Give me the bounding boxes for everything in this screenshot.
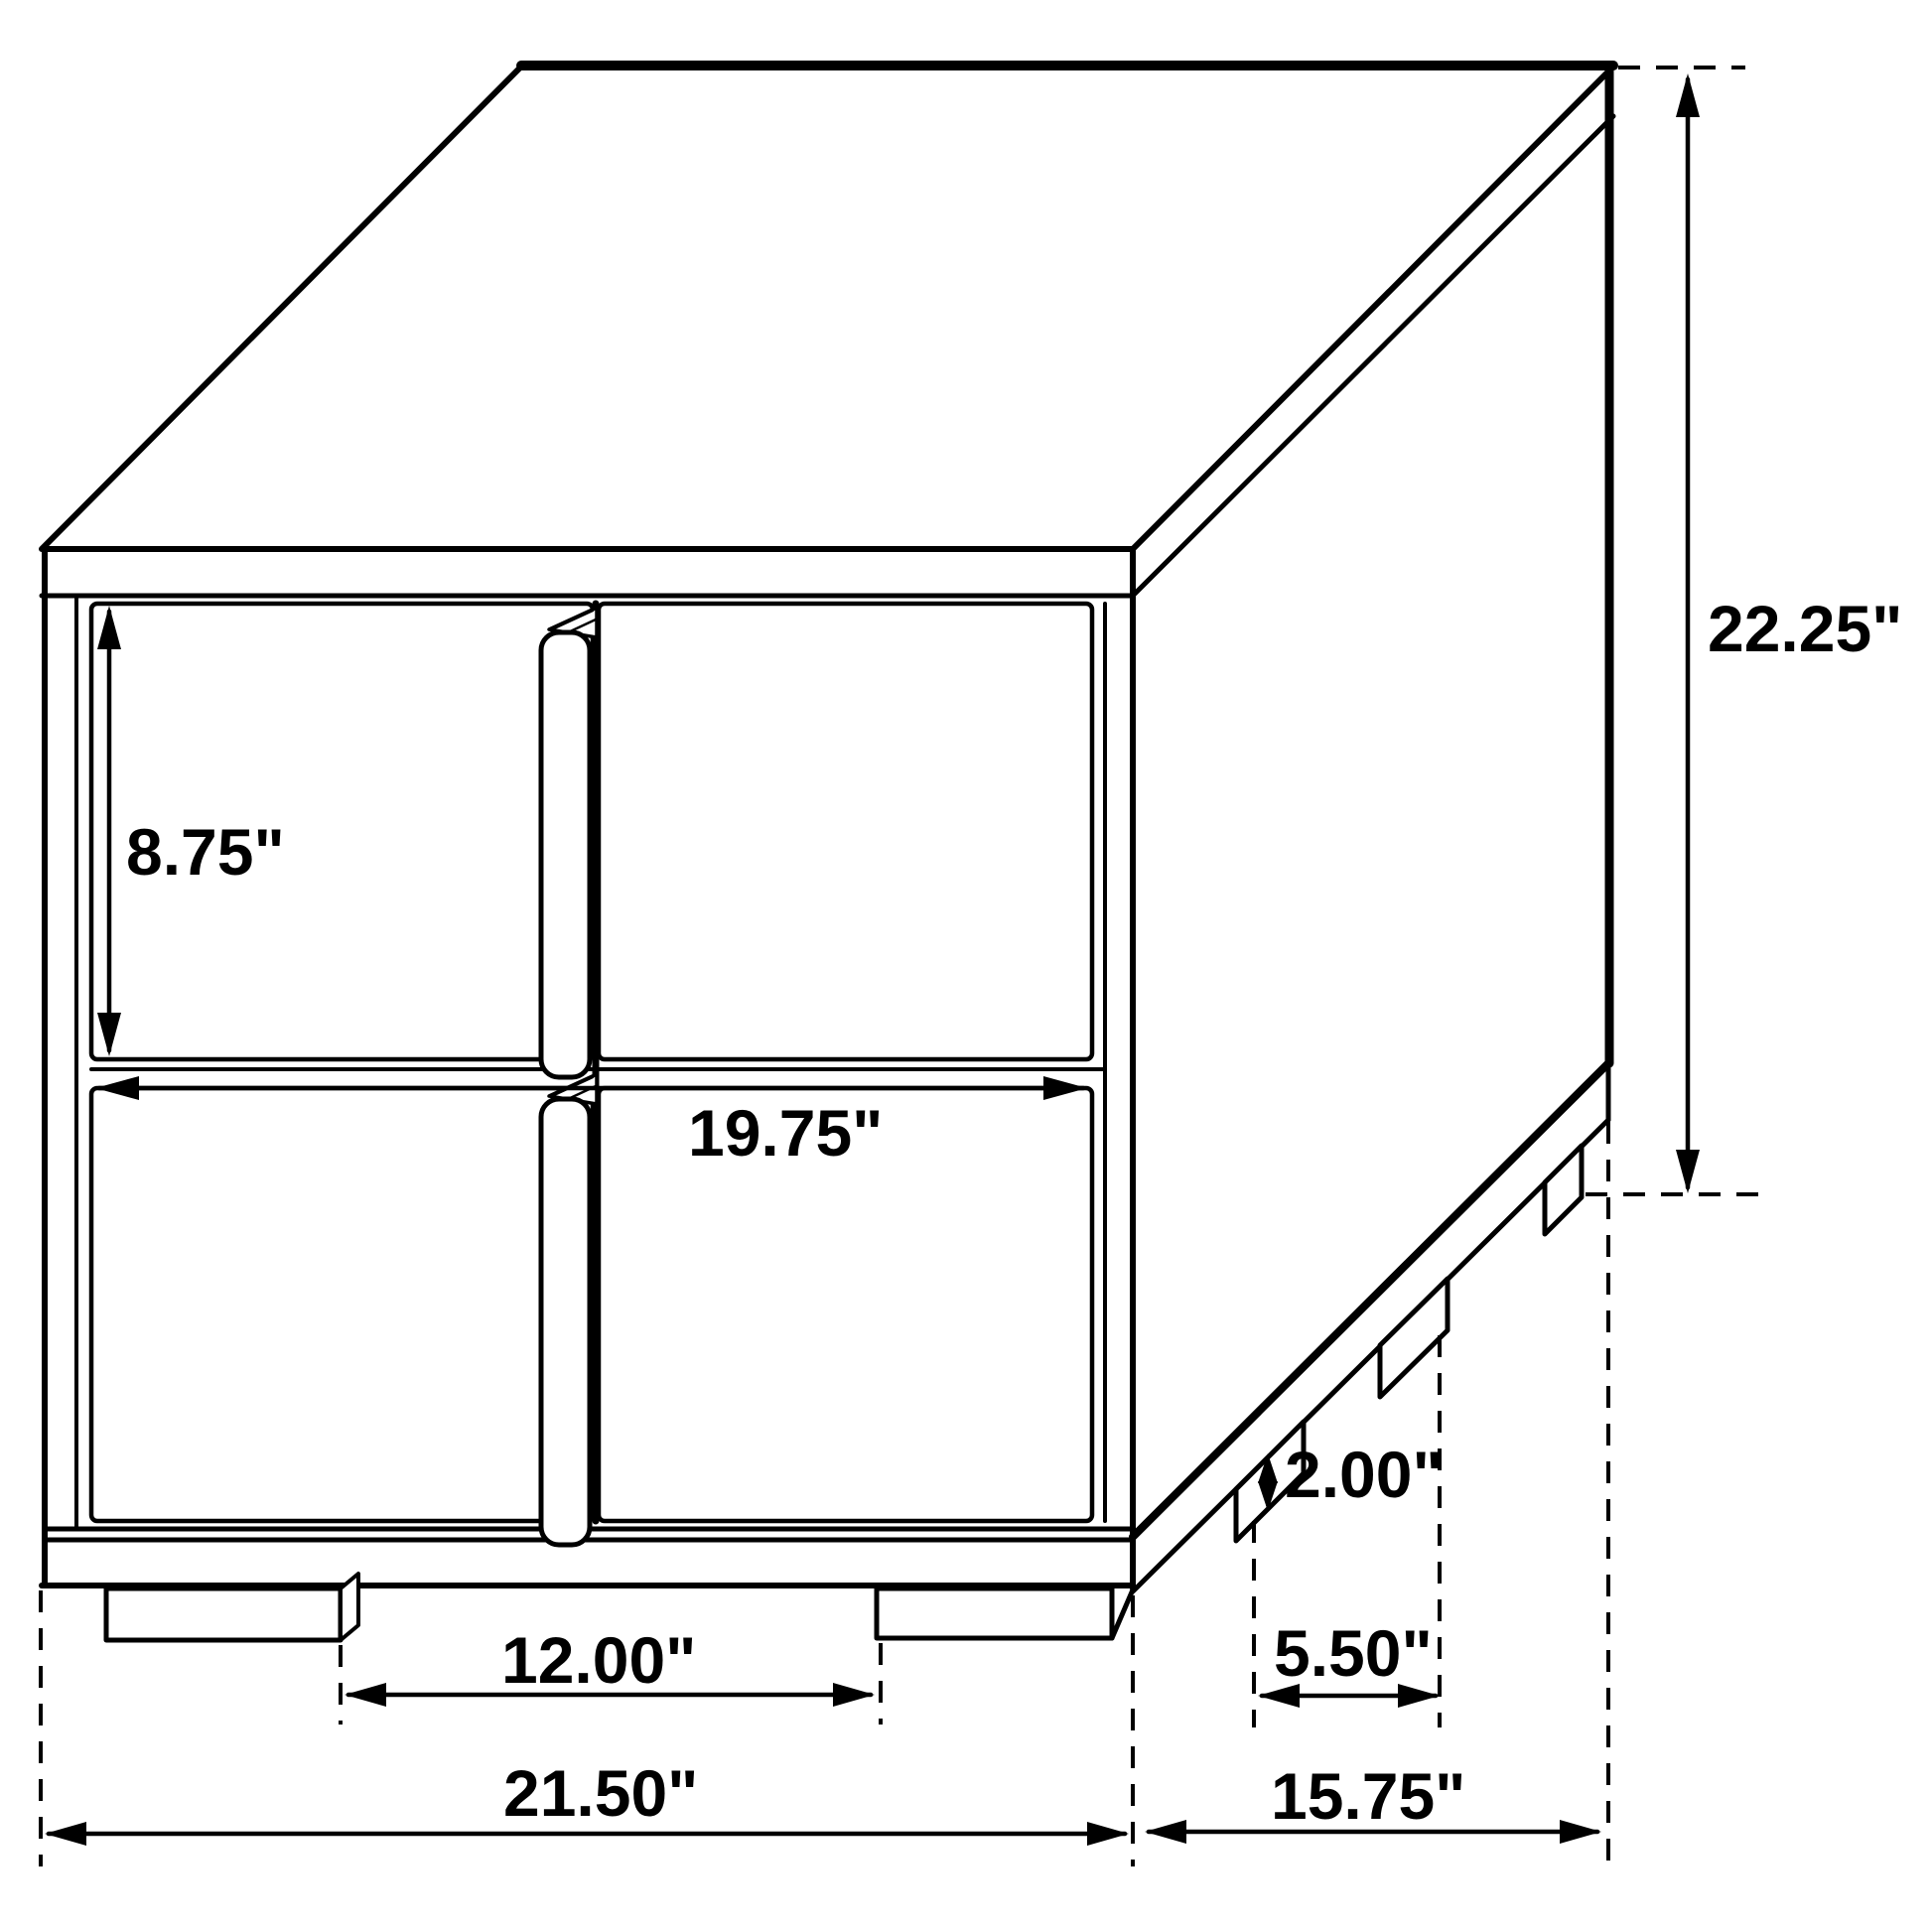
lower-drawer-handle <box>541 1099 590 1545</box>
upper-drawer-handle <box>541 632 590 1077</box>
back-corner-foot <box>1545 1146 1582 1234</box>
dim-label-drawer-height: 8.75" <box>126 815 285 889</box>
nightstand-line-drawing: 8.75" 19.75" 22.25" 2.00" 5. <box>0 0 1932 1932</box>
top-face <box>42 67 1613 549</box>
dim-label-overall-height: 22.25" <box>1708 592 1902 665</box>
dim-label-front-feet-gap: 12.00" <box>501 1623 696 1697</box>
furniture-dimension-diagram: 8.75" 19.75" 22.25" 2.00" 5. <box>0 0 1932 1932</box>
drawer-panel-lower-left <box>91 1088 593 1521</box>
dim-overall-depth: 15.75" <box>1145 1759 1601 1844</box>
dim-label-overall-width: 21.50" <box>503 1756 698 1830</box>
side-foot-rear <box>1380 1279 1448 1397</box>
dim-side-feet-gap: 5.50" <box>1258 1616 1440 1708</box>
front-foot-right <box>877 1587 1134 1638</box>
dim-label-side-feet-gap: 5.50" <box>1274 1616 1433 1690</box>
dim-label-overall-depth: 15.75" <box>1271 1759 1465 1833</box>
dim-label-drawer-width: 19.75" <box>688 1096 883 1170</box>
dim-overall-height: 22.25" <box>1676 73 1902 1193</box>
drawer-panel-upper-right <box>599 604 1092 1059</box>
side-plinth-bottom-edge <box>1133 1120 1608 1591</box>
dim-overall-width: 21.50" <box>45 1756 1129 1846</box>
dim-front-feet-gap: 12.00" <box>345 1623 875 1707</box>
dim-foot-height: 2.00" <box>1258 1438 1444 1511</box>
dim-label-foot-height: 2.00" <box>1285 1438 1444 1511</box>
